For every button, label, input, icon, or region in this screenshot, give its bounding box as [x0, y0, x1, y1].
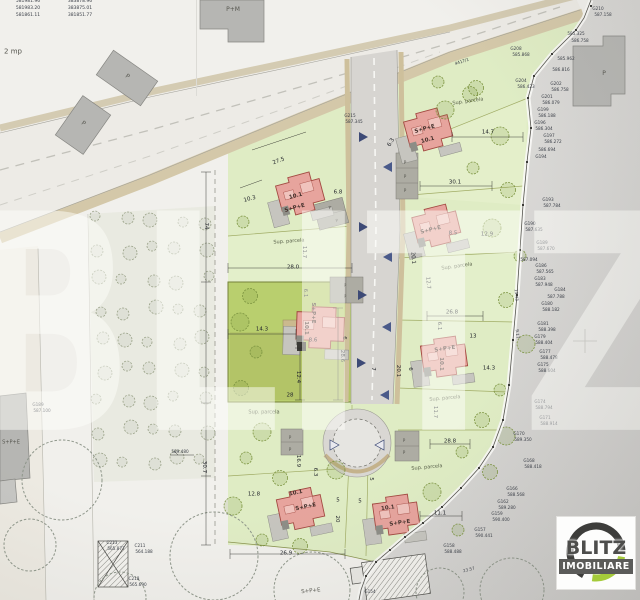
tree-icon — [240, 452, 252, 464]
survey-point-marker — [389, 549, 391, 551]
tree-icon — [168, 391, 178, 401]
tree-icon — [432, 76, 444, 88]
tree-icon — [194, 305, 206, 317]
tree-icon — [273, 471, 288, 486]
tree-icon — [147, 241, 157, 251]
tree-icon — [224, 497, 242, 515]
tree-icon — [199, 218, 211, 230]
survey-point-marker — [365, 575, 367, 577]
tree-icon — [243, 289, 258, 304]
tree-icon — [201, 426, 215, 440]
tree-icon — [91, 245, 103, 257]
survey-point-marker — [512, 339, 514, 341]
cul-de-sac — [333, 419, 381, 467]
survey-point-marker — [422, 522, 424, 524]
tree-icon — [143, 362, 155, 374]
tree-icon — [452, 524, 464, 536]
tree-icon — [123, 395, 135, 407]
tree-icon — [118, 333, 132, 347]
tree-icon — [123, 246, 137, 260]
tree-icon — [469, 81, 484, 96]
tree-icon — [143, 213, 157, 227]
tree-icon — [98, 366, 112, 380]
tree-icon — [423, 483, 441, 501]
tree-icon — [170, 450, 184, 464]
tree-icon — [148, 424, 158, 434]
tree-icon — [231, 313, 249, 331]
tree-icon — [122, 212, 134, 224]
tree-icon — [483, 219, 501, 237]
survey-point-marker — [527, 97, 529, 99]
tree-icon — [467, 162, 479, 174]
survey-point-marker — [575, 29, 577, 31]
tree-icon — [195, 330, 209, 344]
tree-icon — [144, 396, 158, 410]
tree-icon — [91, 394, 101, 404]
site-plan-photo: 581981.96581983.20581861.11383878.963838… — [0, 0, 640, 600]
logo-word: BLITZ — [557, 539, 635, 558]
tree-icon — [483, 465, 498, 480]
survey-point-marker — [478, 467, 480, 469]
tree-icon — [200, 243, 214, 257]
tree-icon — [253, 423, 271, 441]
tree-icon — [92, 270, 106, 284]
tree-icon — [475, 413, 490, 428]
survey-point-marker — [441, 506, 443, 508]
tree-icon — [237, 216, 249, 228]
tree-icon — [204, 271, 214, 281]
tree-icon — [173, 304, 183, 314]
survey-point-marker — [502, 419, 504, 421]
tree-icon — [97, 332, 109, 344]
logo-subtitle: IMOBILIARE — [559, 559, 633, 574]
tree-icon — [142, 337, 152, 347]
survey-point-marker — [530, 127, 532, 129]
tree-icon — [90, 211, 100, 221]
survey-point-marker — [590, 5, 592, 7]
survey-point-marker — [404, 536, 406, 538]
tree-icon — [149, 458, 161, 470]
tree-icon — [117, 308, 129, 320]
survey-point-marker — [519, 249, 521, 251]
tree-icon — [494, 384, 506, 396]
tree-icon — [175, 363, 189, 377]
tree-icon — [499, 293, 514, 308]
tree-icon — [178, 217, 188, 227]
tree-icon — [149, 300, 163, 314]
survey-point-marker — [492, 446, 494, 448]
tree-icon — [456, 446, 468, 458]
tree-icon — [169, 276, 183, 290]
tree-icon — [122, 361, 132, 371]
paper-fold-line — [196, 0, 197, 96]
blitz-imobiliare-logo: BLITZ IMOBILIARE — [556, 516, 636, 590]
tree-icon — [327, 461, 345, 479]
tree-icon — [168, 242, 180, 254]
tree-icon — [116, 274, 126, 284]
survey-point-marker — [516, 294, 518, 296]
tree-icon — [256, 534, 268, 546]
survey-point-marker — [375, 561, 377, 563]
survey-point-marker — [460, 487, 462, 489]
tree-icon — [93, 453, 107, 467]
survey-point-marker — [522, 204, 524, 206]
tree-icon — [293, 539, 308, 554]
survey-point-marker — [508, 384, 510, 386]
tree-icon — [491, 127, 509, 145]
tree-icon — [234, 381, 249, 396]
tree-icon — [250, 346, 262, 358]
tree-icon — [199, 367, 209, 377]
tree-icon — [148, 275, 160, 287]
tree-icon — [117, 457, 127, 467]
tree-icon — [169, 425, 181, 437]
tree-icon — [92, 428, 104, 440]
tree-icon — [517, 335, 535, 353]
site-plan-drawing — [0, 0, 640, 600]
tree-icon — [194, 454, 204, 464]
survey-point-marker — [526, 161, 528, 163]
survey-point-marker — [551, 53, 553, 55]
survey-point-marker — [533, 75, 535, 77]
tree-icon — [436, 101, 454, 119]
tree-icon — [501, 183, 516, 198]
tree-icon — [124, 420, 138, 434]
tree-icon — [174, 338, 186, 350]
tree-icon — [96, 307, 106, 317]
parcel-shade — [398, 252, 519, 322]
